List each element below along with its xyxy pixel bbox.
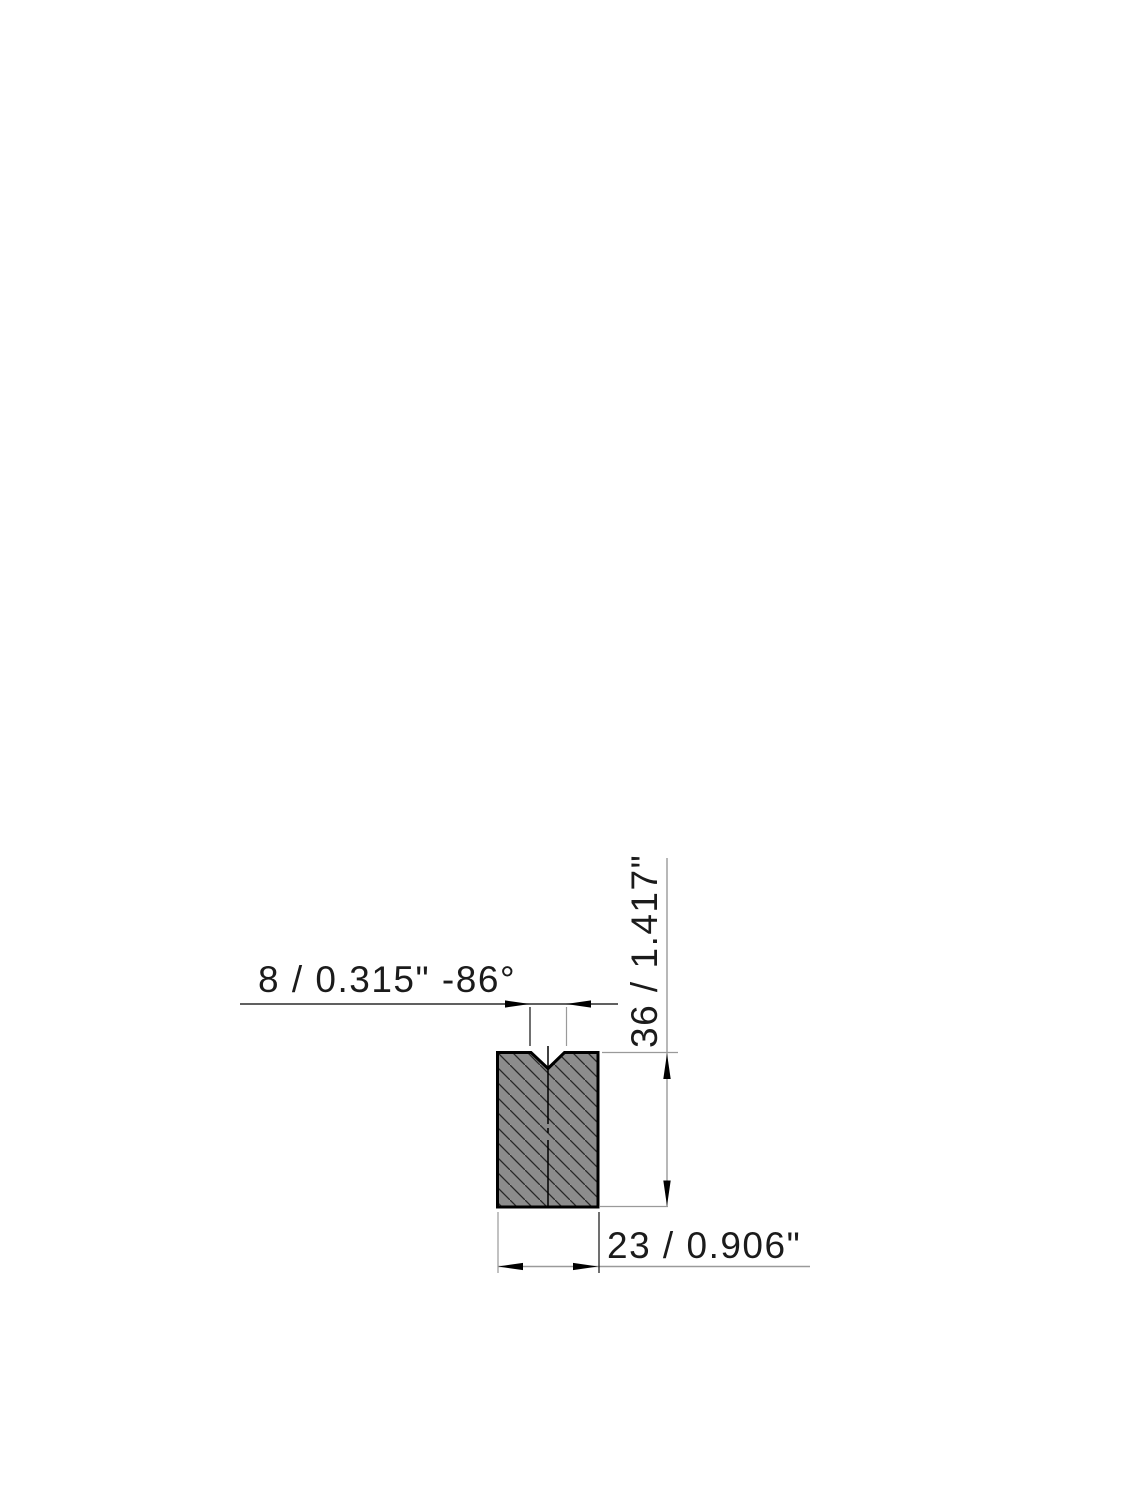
dim-label-die-height: 36 / 1.417" <box>626 854 663 1048</box>
arrow-die-height-bottom <box>663 1181 670 1207</box>
arrow-die-width-right <box>573 1263 598 1270</box>
arrow-die-width-left <box>498 1263 523 1270</box>
arrow-v-opening-right <box>566 1000 591 1007</box>
dim-label-v-opening: 8 / 0.315" -86° <box>258 961 516 998</box>
die-drawing-svg <box>0 0 1124 1500</box>
arrow-die-height-top <box>663 1054 670 1080</box>
dim-label-die-width: 23 / 0.906" <box>607 1227 801 1264</box>
drawing-canvas: 8 / 0.315" -86° 36 / 1.417" 23 / 0.906" <box>0 0 1124 1500</box>
arrow-v-opening-left <box>505 1000 530 1007</box>
